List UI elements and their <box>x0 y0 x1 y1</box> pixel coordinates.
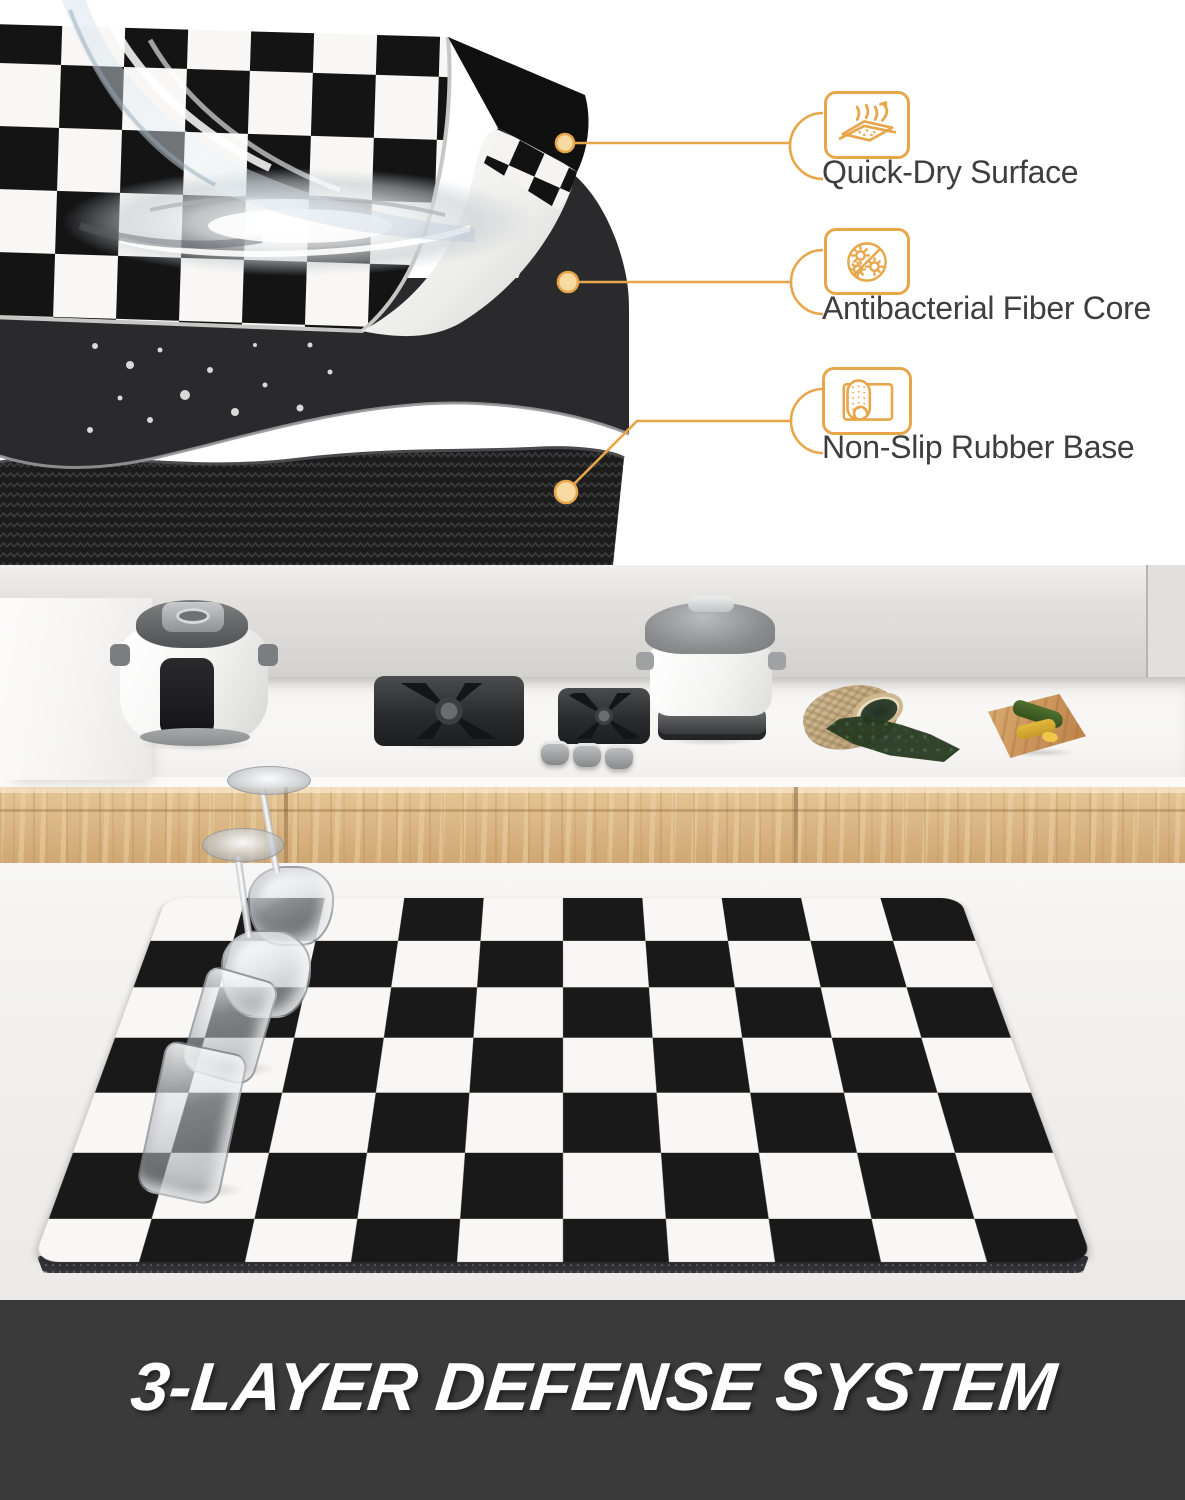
callout-label-antibacterial: Antibacterial Fiber Core <box>822 290 1151 327</box>
layer-diagram-art <box>0 0 1185 565</box>
bottom-banner: 3-LAYER DEFENSE SYSTEM <box>0 1300 1185 1500</box>
cabinet-top-rail <box>0 787 1185 793</box>
cabinet-door-gap <box>794 787 798 863</box>
stove-knob <box>541 741 569 765</box>
pressure-cooker-panel <box>160 658 214 736</box>
wood-cabinets <box>0 787 1185 863</box>
stove-knob <box>573 743 601 767</box>
wine-glass-foot <box>227 766 311 795</box>
cabinet-door-gap <box>284 787 288 863</box>
pot-handle <box>768 652 786 670</box>
pot-handle <box>636 652 654 670</box>
burner-grate <box>566 693 642 739</box>
cooker-side-handle <box>110 644 130 666</box>
antibacterial-fiber-core-icon <box>824 228 910 295</box>
cooker-side-handle <box>258 644 278 666</box>
non-slip-rubber-base-icon <box>822 367 912 435</box>
kitchen-wall-corner <box>1146 565 1185 681</box>
pot-body <box>650 646 772 716</box>
banner-title: 3-LAYER DEFENSE SYSTEM <box>125 1348 1060 1452</box>
quick-dry-surface-icon <box>824 91 910 159</box>
pot-lid-handle <box>688 596 734 612</box>
callout-label-quick-dry: Quick-Dry Surface <box>822 154 1078 191</box>
gas-burner-middle <box>558 688 650 744</box>
product-infographic: Quick-Dry Surface Antibacterial Fiber Co… <box>0 0 1185 1500</box>
gas-burner-left <box>374 676 524 746</box>
stove-knob <box>605 745 633 769</box>
pressure-cooker-button <box>176 608 210 624</box>
wine-glass-foot <box>202 828 284 862</box>
burner-grate <box>388 683 510 739</box>
cabinet-groove <box>0 809 1185 812</box>
callout-label-non-slip: Non-Slip Rubber Base <box>822 429 1134 466</box>
pressure-cooker-base <box>140 728 250 746</box>
